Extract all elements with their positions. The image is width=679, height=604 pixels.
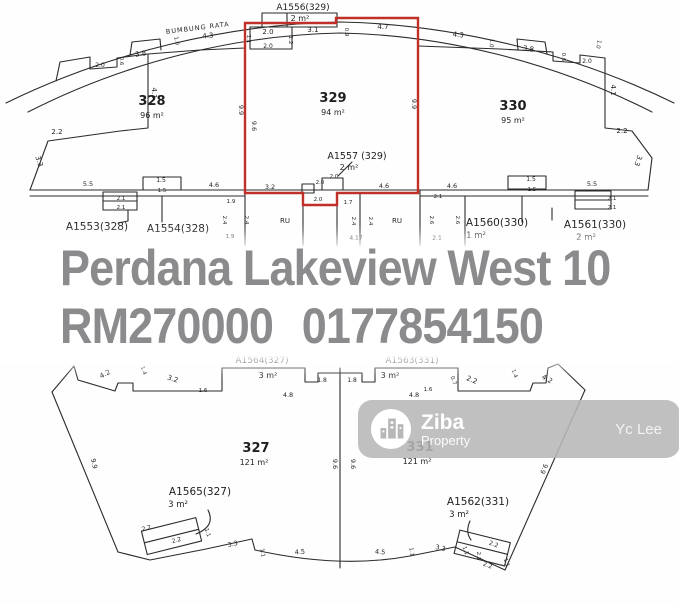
accessory-area: 3 m² — [449, 510, 469, 520]
accessory-label: A1557 (329) — [327, 151, 386, 162]
lot-328-left-side — [30, 54, 148, 190]
lot-area: 121 m² — [403, 457, 432, 466]
dimension-label: 1.1 — [203, 528, 211, 538]
dimension-label: 4.8 — [409, 391, 419, 399]
dimension-label: 2.4 — [243, 216, 249, 225]
watermark-brand: Ziba — [421, 412, 470, 433]
listing-title: Perdana Lakeview West 10 — [60, 243, 610, 293]
dimension-label: 3.3 — [227, 539, 239, 549]
lot-330-top-edge — [418, 46, 605, 63]
dimension-label: 2.1 — [117, 205, 126, 211]
dimension-label: 9.6 — [331, 459, 339, 469]
dimension-label: 1.4 — [139, 366, 148, 377]
listing-price: RM270000 — [60, 298, 273, 354]
dimension-label: 3.3 — [435, 543, 447, 553]
dimension-label: 4.6 — [379, 182, 389, 190]
dimension-label: 4.2 — [540, 373, 554, 385]
dimension-label: 2.6 — [454, 216, 460, 225]
room-label: RU — [392, 217, 402, 225]
dimension-label: 1.1 — [245, 35, 251, 44]
lot-number: 330 — [499, 99, 526, 114]
dimension-label: 0.7 — [449, 376, 458, 387]
property-listing-image: A1556(329)2 m²BUMBUNG RATA4.31.12.01.23.… — [0, 0, 679, 604]
accessory-area: 2 m² — [340, 163, 359, 172]
dimension-label: 2.4 — [350, 217, 356, 226]
dimension-label: 1.6 — [199, 388, 208, 394]
dimension-label: 2.4 — [221, 216, 227, 225]
dimension-label: 4.8 — [283, 391, 293, 399]
dimension-label: 1.8 — [347, 377, 357, 384]
bottom-plan-outline — [52, 364, 585, 570]
ziba-logo-icon — [370, 408, 412, 450]
dimension-label: 2.1 — [608, 205, 617, 211]
dimension-label: 3.2 — [265, 183, 275, 191]
accessory-label: A1554(328) — [147, 223, 209, 235]
dimension-label: 0.6 — [560, 53, 566, 62]
dimension-label: 9.6 — [250, 121, 258, 131]
lot-number: 329 — [319, 91, 346, 106]
top-plan-labels: A1556(329)2 m²BUMBUNG RATA4.31.12.01.23.… — [33, 3, 643, 243]
watermark-agent-name: Yc Lee — [615, 421, 662, 438]
lot-327-outer-edge — [52, 392, 118, 552]
dimension-label: 1.7 — [344, 200, 353, 206]
watermark-banner: Ziba Property Yc Lee — [358, 400, 679, 458]
listing-phone: 0177854150 — [302, 298, 543, 354]
dimension-label: 1.5 — [158, 188, 167, 194]
accessory-area: 3 m² — [381, 371, 400, 380]
lot-number: 328 — [138, 94, 165, 109]
dimension-label: 9.9 — [410, 99, 418, 109]
dimension-label: 2.0 — [316, 180, 325, 186]
dimension-label: 4.2 — [98, 368, 112, 380]
dimension-label: 4.1 — [609, 84, 617, 95]
dimension-label: 9.9 — [89, 458, 99, 470]
top-zigzag-left — [52, 366, 340, 392]
dimension-label: 2.6 — [428, 216, 434, 225]
dimension-label: 1.9 — [227, 199, 236, 205]
accessory-area: 3 m² — [259, 371, 278, 380]
dimension-label: 1.1 — [258, 548, 265, 558]
room-label: RU — [280, 217, 290, 225]
dimension-label: 1.2 — [287, 36, 293, 45]
dimension-label: 2.4 — [367, 217, 373, 226]
dimension-label: 0.6 — [118, 57, 124, 66]
dimension-label: 4.6 — [447, 182, 457, 190]
listing-contact-line: RM2700000177854150 — [60, 301, 543, 351]
dimension-label: 9.6 — [349, 459, 357, 469]
dimension-label: 1.5 — [156, 177, 166, 184]
dimension-label: 4.3 — [202, 32, 214, 41]
dimension-label: 2.0 — [263, 43, 273, 50]
dimension-label: 2.1 — [475, 552, 481, 561]
accessory-label: A1556(329) — [276, 3, 329, 13]
dimension-label: 4.5 — [375, 548, 386, 557]
dimension-label: 1.1 — [407, 547, 414, 556]
dimension-label: 4.7 — [377, 23, 388, 31]
bottom-plan-labels: 4.21.43.21.6A1564(327)3 m²1.81.8A1563(33… — [89, 356, 554, 571]
dimension-label: 3.8 — [522, 44, 534, 54]
dimension-label: 2.2 — [465, 374, 478, 386]
dimension-label: 4.5 — [294, 548, 305, 557]
accessory-label: A1561(330) — [564, 219, 626, 231]
dimension-label: 2.2 — [51, 128, 62, 136]
dimension-label: 1.5 — [526, 176, 536, 183]
a1562-leader — [468, 521, 471, 540]
lot-number: 327 — [242, 441, 269, 456]
dimension-label: 9.9 — [237, 105, 245, 115]
dimension-label: 2.1 — [117, 196, 126, 202]
dimension-label: 2.0 — [582, 58, 592, 65]
accessory-label: A1562(331) — [447, 496, 509, 508]
dimension-label: 1.1 — [502, 558, 510, 568]
dimension-label: 2.1 — [608, 196, 617, 202]
lot-330-right-side — [605, 58, 652, 190]
dimension-label: 2.1 — [434, 194, 443, 200]
dimension-label: 1.6 — [424, 387, 433, 393]
dimension-label: 1.4 — [510, 369, 519, 380]
accessory-area: 3 m² — [168, 500, 188, 510]
box-a1561 — [575, 191, 611, 209]
dimension-label: 3.8 — [135, 49, 147, 59]
dimension-label: 2.2 — [141, 524, 152, 533]
accessory-label: A1565(327) — [169, 486, 231, 498]
lot-area: 96 m² — [140, 111, 164, 120]
dimension-label: 2.2 — [482, 561, 494, 571]
lot-area: 94 m² — [321, 108, 345, 117]
dimension-label: 5.5 — [587, 180, 597, 188]
dimension-label: 2.2 — [171, 536, 182, 545]
dimension-label: 1.0 — [172, 36, 180, 46]
a1565-box — [141, 518, 201, 555]
dimension-label: 3.1 — [307, 26, 318, 34]
dimension-label: 1.0 — [594, 39, 602, 49]
dimension-label: 1.5 — [528, 187, 537, 193]
dimension-label: 4.6 — [209, 181, 219, 189]
dimension-label: 2.0 — [330, 174, 339, 180]
dimension-label: 2.2 — [616, 127, 627, 135]
dimension-label: 4.3 — [452, 30, 464, 39]
dimension-label: 5.5 — [83, 180, 93, 188]
dimension-label: 1.0 — [488, 38, 495, 48]
dimension-label: 2.0 — [95, 62, 105, 69]
lot-area: 121 m² — [240, 458, 269, 467]
dimension-label: 3.3 — [632, 154, 643, 167]
dimension-label: 0.9 — [343, 28, 349, 37]
dimension-label: 1.8 — [317, 377, 327, 384]
dimension-label: 1.1 — [461, 546, 470, 556]
dimension-label: 2.2 — [488, 540, 500, 550]
accessory-area: 2 m² — [291, 14, 310, 23]
dimension-label: 2.0 — [314, 197, 323, 203]
dimension-label: 2.0 — [262, 28, 273, 36]
watermark-brand-sub: Property — [421, 434, 470, 447]
accessory-label: A1560(330) — [466, 217, 528, 229]
dimension-label: 3.2 — [166, 374, 179, 385]
lot-area: 95 m² — [501, 116, 525, 125]
top-plan-outline — [6, 13, 674, 246]
accessory-label: A1553(328) — [66, 221, 128, 233]
